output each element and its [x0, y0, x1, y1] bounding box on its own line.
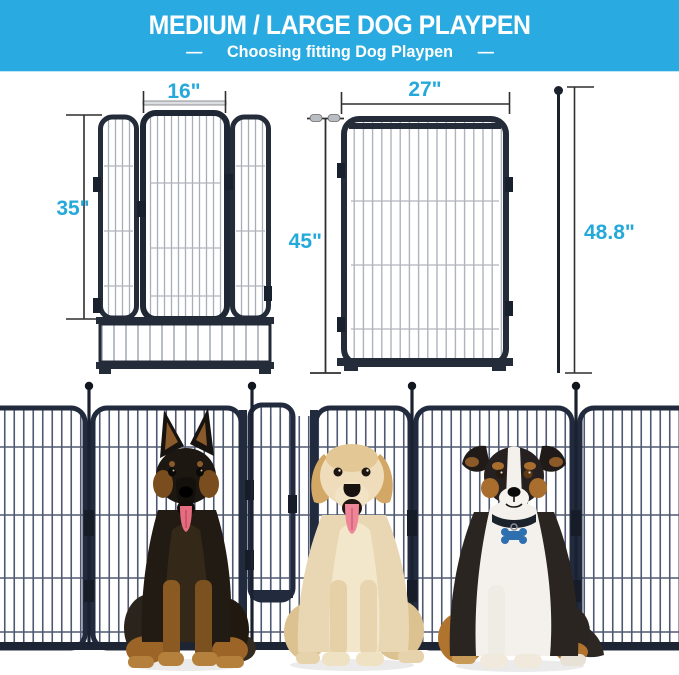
dimension-diagrams: 16" 35" 27" 45" 48.8"	[0, 71, 679, 380]
subtitle-dash-left: —	[186, 42, 202, 62]
gate-door	[143, 113, 227, 319]
header-banner: MEDIUM / LARGE DOG PLAYPEN — Choosing fi…	[0, 0, 679, 72]
diagram-drawing	[0, 71, 679, 380]
dim-label-total-height-48-8: 48.8"	[584, 222, 656, 243]
gate-panel-diagram	[66, 91, 274, 374]
photo-drawing	[0, 380, 679, 675]
product-infographic: MEDIUM / LARGE DOG PLAYPEN — Choosing fi…	[0, 0, 679, 675]
fence-door	[250, 405, 293, 600]
large-panel-diagram	[307, 86, 594, 373]
playpen-photo	[0, 380, 679, 675]
header-subtitle: — Choosing fitting Dog Playpen —	[186, 42, 494, 62]
subtitle-text: Choosing fitting Dog Playpen	[226, 42, 452, 62]
dim-label-width-27: 27"	[393, 79, 457, 100]
dim-label-door-width-16: 16"	[150, 81, 218, 102]
ground-stake-icon	[554, 86, 563, 373]
dim-label-height-35: 35"	[42, 198, 104, 219]
dim-label-height-45: 45"	[278, 231, 322, 252]
page-title: MEDIUM / LARGE DOG PLAYPEN	[149, 11, 531, 39]
subtitle-dash-right: —	[477, 42, 493, 62]
